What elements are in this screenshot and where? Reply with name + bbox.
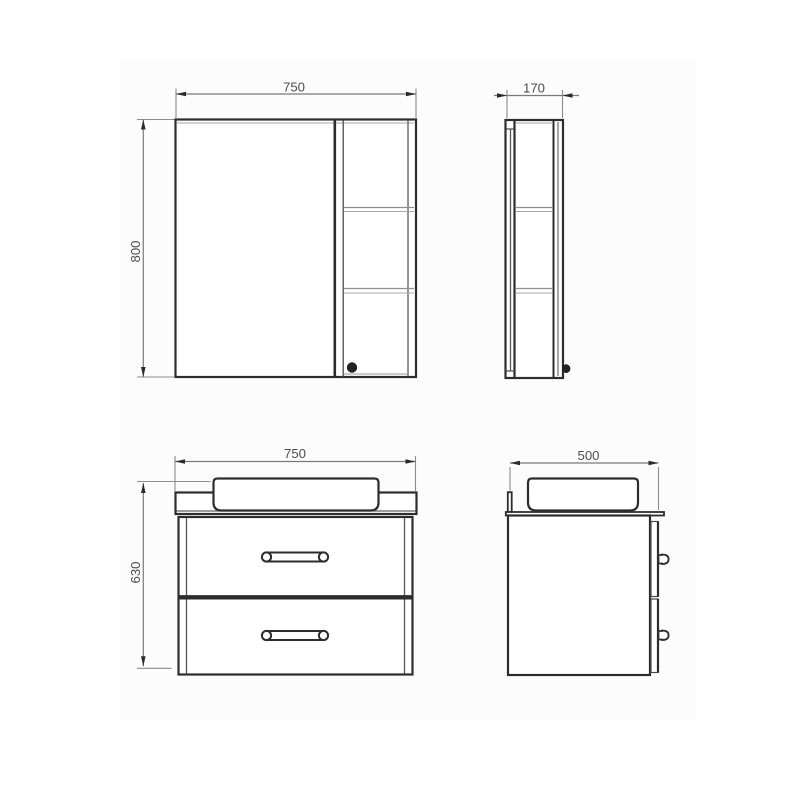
svg-text:750: 750 <box>283 80 305 95</box>
svg-text:750: 750 <box>284 446 306 461</box>
svg-text:170: 170 <box>523 81 545 96</box>
svg-text:800: 800 <box>128 240 143 262</box>
svg-text:500: 500 <box>577 448 599 463</box>
svg-text:630: 630 <box>128 561 143 583</box>
